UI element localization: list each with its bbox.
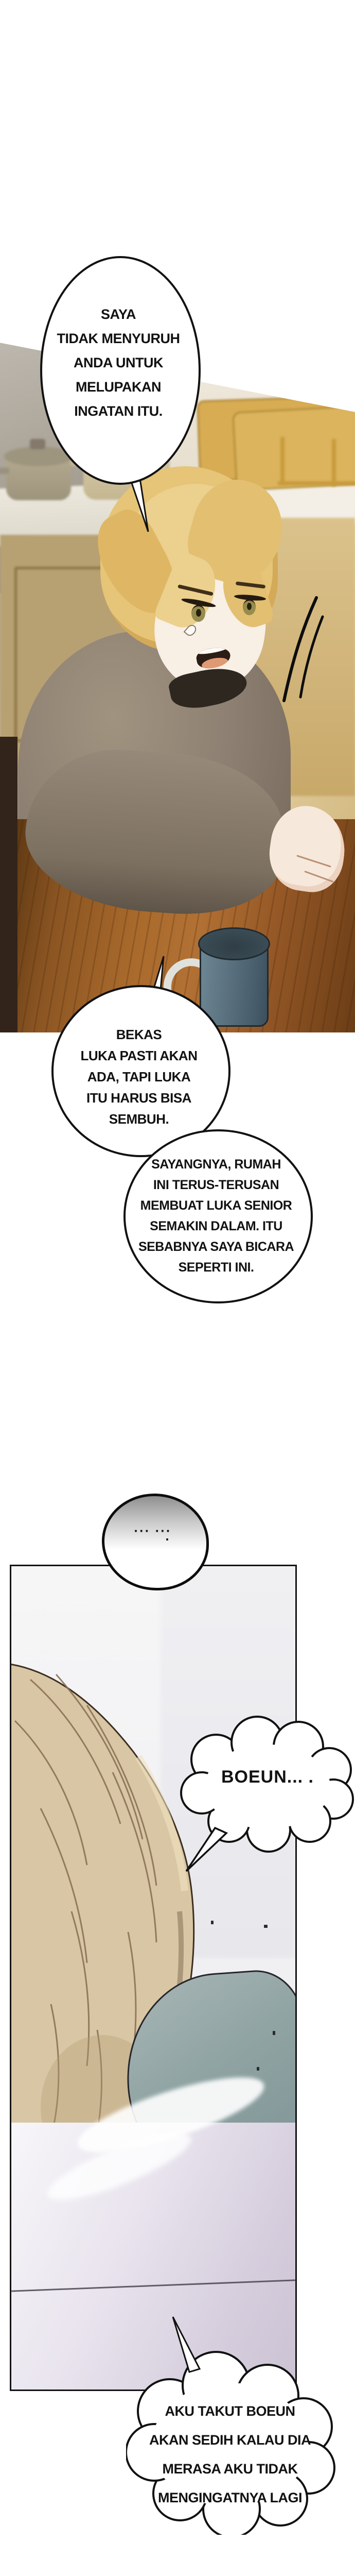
- dust-speck: [264, 1925, 268, 1928]
- thought-bubble-period: .: [162, 1529, 172, 1543]
- bubble-line: SAYA: [41, 302, 196, 327]
- bubble-line: ITU HARUS BISA: [51, 1088, 226, 1109]
- table-edge-dark: [0, 737, 17, 1032]
- bedding-highlight: [41, 2121, 198, 2212]
- board-rack-post: [280, 437, 285, 484]
- bedding-crease-line: [11, 2279, 295, 2292]
- marble-counter: [0, 482, 188, 547]
- comic-page: SAYA TIDAK MENYURUH ANDA UNTUK MELUPAKAN…: [0, 0, 355, 2576]
- board-rack-base: [278, 481, 355, 485]
- character-neck-shadow: [167, 662, 250, 714]
- bubble-line: SAYANGNYA, RUMAH: [123, 1154, 309, 1175]
- bubble-line: INI TERUS-TERUSAN: [123, 1175, 309, 1195]
- bubble-line: TIDAK MENYURUH: [41, 327, 196, 351]
- bubble-line: SEMAKIN DALAM. ITU: [123, 1216, 309, 1236]
- bubble-line: MENGINGATNYA LAGI: [135, 2483, 325, 2512]
- cutting-board-front: [232, 405, 355, 491]
- bubble-line: SEBABNYA SAYA BICARA: [123, 1236, 309, 1257]
- character-face: [147, 562, 273, 698]
- bedding: [11, 2123, 295, 2391]
- character-hand: [264, 802, 350, 896]
- character-eyebrow: [236, 581, 265, 588]
- panel-bedroom: [10, 1565, 297, 2391]
- thought-bubble-monologue-text: AKU TAKUT BOEUN AKAN SEDIH KALAU DIA MER…: [135, 2397, 325, 2512]
- character-arm-sleeve: [21, 743, 288, 921]
- bubble-line: ADA, TAPI LUKA: [51, 1066, 226, 1088]
- thought-bubble-dots-text: ··· ···: [102, 1524, 204, 1537]
- wall-shade: [161, 1566, 295, 1958]
- bubble-line: SEPERTI INI.: [123, 1257, 309, 1278]
- bedding-highlight: [70, 2062, 271, 2167]
- character-hair-strand: [153, 550, 225, 635]
- speech-bubble-bekas-text: BEKAS LUKA PASTI AKAN ADA, TAPI LUKA ITU…: [51, 1024, 226, 1130]
- dust-speck: [211, 1921, 214, 1924]
- character-torso-sweater: [18, 631, 291, 940]
- character-hair-fringe: [179, 470, 294, 594]
- bubble-line: SEMBUH.: [51, 1109, 226, 1130]
- sleeping-character-hair: [10, 1643, 226, 2251]
- character-eyebrow: [177, 584, 214, 596]
- character-eye-left: [181, 597, 217, 609]
- bubble-line: ··· ···: [102, 1524, 204, 1537]
- bubble-line: MELUPAKAN: [41, 375, 196, 399]
- pillow-teal: [120, 1967, 297, 2186]
- character-ear: [143, 577, 168, 610]
- character-pupil-right: [247, 603, 252, 610]
- character-hair-back: [100, 466, 278, 652]
- bubble-line: INGATAN ITU.: [41, 399, 196, 423]
- dust-speck: [273, 2031, 275, 2035]
- character-eye-right: [234, 594, 267, 601]
- hand-finger-line: [304, 871, 333, 883]
- cabinet-right: [177, 518, 355, 796]
- dust-speck: [257, 2067, 259, 2071]
- bubble-line: BOEUN... .: [203, 1768, 332, 1786]
- cabinet-left-frame: [14, 567, 152, 742]
- character-iris-left: [191, 605, 205, 622]
- bubble-line: BEKAS: [51, 1024, 226, 1045]
- bubble-line: MEMBUAT LUKA SENIOR: [123, 1195, 309, 1216]
- bubble-line: ANDA UNTUK: [41, 351, 196, 375]
- cabinet-left: [0, 535, 177, 865]
- bubble-line: MERASA AKU TIDAK: [135, 2454, 325, 2483]
- counter-right: [173, 470, 355, 523]
- mug-rim: [198, 927, 270, 960]
- speech-bubble-boeun-text: BOEUN... .: [203, 1768, 332, 1786]
- cutting-board-back: [197, 395, 355, 482]
- bubble-line: AKU TAKUT BOEUN: [135, 2397, 325, 2426]
- pot-small: [6, 456, 71, 500]
- speech-bubble-saya-text: SAYA TIDAK MENYURUH ANDA UNTUK MELUPAKAN…: [41, 302, 196, 423]
- pot-small-handle: [0, 468, 9, 474]
- character-pupil-left: [196, 609, 201, 617]
- character-hair-strand: [216, 557, 276, 633]
- bubble-line: LUKA PASTI AKAN: [51, 1045, 226, 1066]
- bubble-line: .: [162, 1529, 172, 1543]
- speech-bubble-sayangnya-text: SAYANGNYA, RUMAH INI TERUS-TERUSAN MEMBU…: [123, 1154, 309, 1278]
- character-hair-fringe: [119, 473, 255, 596]
- character-iris-right: [243, 599, 256, 615]
- hand-finger-line: [296, 855, 331, 867]
- pot-small-knob: [30, 439, 45, 449]
- motion-lines: [273, 595, 324, 714]
- character-mouth-open: [195, 646, 232, 671]
- character-sweat-drop: [184, 623, 199, 638]
- board-rack-post: [332, 439, 336, 486]
- mug-body: [200, 940, 269, 1027]
- character-hair-strand: [84, 502, 189, 626]
- bubble-line: AKAN SEDIH KALAU DIA: [135, 2426, 325, 2454]
